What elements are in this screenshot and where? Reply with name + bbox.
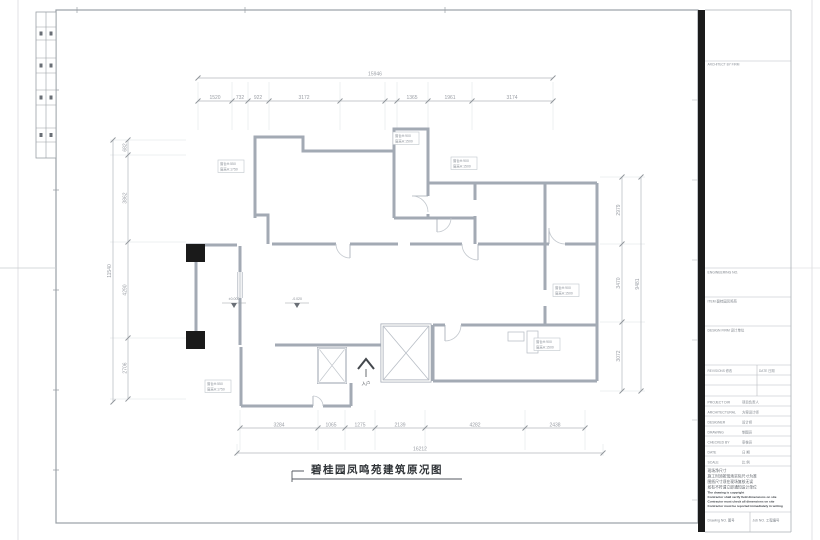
window-tag: 窗台H:550 窗高H:1750 — [205, 380, 231, 393]
shaft-x-mark — [384, 327, 428, 379]
window-tag: 窗台H:900 窗高H:1500 — [451, 157, 477, 170]
tag-line2: 窗高H:1750 — [220, 167, 238, 172]
door-arcs — [313, 196, 565, 406]
column-black-2 — [186, 331, 205, 349]
dim-bottom-seg: 1065 — [325, 422, 336, 428]
floor-plan: 入户 ±0.000 -0.020 窗台H:550 窗高H:1750 窗台H:90… — [110, 82, 645, 456]
dim-bottom-seg: 2438 — [549, 422, 560, 428]
tag-line1: 窗台H:900 — [395, 133, 411, 138]
tb-row-en: CHECKED BY — [708, 440, 731, 444]
tb-design-firm: DESIGN FIRM 设计单位 — [708, 328, 745, 333]
tag-line2: 窗高H:1500 — [555, 291, 573, 296]
drawing-title: 碧桂园凤鸣苑建筑原况图 — [292, 463, 462, 482]
dim-left-seg: 3862 — [123, 192, 129, 203]
bar-tick-marks — [692, 100, 698, 500]
dim-bottom-seg: 4282 — [469, 422, 480, 428]
frame-tick-marks — [53, 7, 445, 470]
dim-right-overall: 9481 — [635, 278, 641, 289]
tb-drawing-no: Drawing NO. 图号 — [708, 518, 736, 523]
dimension-extension-lines — [110, 82, 645, 456]
dim-left-seg: 682 — [123, 143, 129, 152]
tb-row-zh: 方案设计师 — [742, 409, 760, 414]
tb-row-en: ARCHITECTURAL — [708, 410, 737, 414]
stair-shaft — [318, 348, 346, 383]
level-marker-value: -0.020 — [292, 297, 302, 301]
tag-line1: 窗台H:900 — [536, 339, 552, 344]
tb-row-zh: 设计师 — [742, 419, 753, 424]
window-lines — [238, 150, 597, 300]
elevator-shaft — [382, 325, 430, 381]
dim-right-seg: 3470 — [616, 277, 622, 288]
tb-job-no: Job NO. 工程编号 — [753, 518, 781, 523]
title-block-bar — [698, 10, 705, 532]
dimensions: 15946 1520 732 922 3172 1365 1961 3174 1… — [107, 72, 644, 456]
tb-row-zh: 比 例 — [742, 459, 750, 464]
tag-line1: 窗台H:550 — [220, 161, 236, 166]
tb-row-en: PROJECT DIR — [708, 400, 731, 404]
tag-line2: 窗高H:1750 — [207, 387, 225, 392]
dim-top-seg: 3174 — [506, 95, 517, 101]
tb-note: The drawing is copyright — [708, 491, 745, 495]
tag-line1: 窗台H:550 — [207, 381, 223, 386]
tag-line1: 窗台H:900 — [453, 158, 469, 163]
tb-engineering-no: ENGINEERING NO. — [708, 271, 739, 275]
entry-arrow: 入户 — [358, 359, 374, 387]
sheet-frame — [0, 0, 820, 540]
tb-row-zh: 制图员 — [742, 429, 753, 434]
kitchen-fixtures — [508, 331, 538, 353]
drawing-frame — [56, 10, 698, 523]
window-tags: 窗台H:550 窗高H:1750 窗台H:900 窗高H:1500 窗台H:90… — [205, 132, 579, 393]
drawing-sheet: 入户 ±0.000 -0.020 窗台H:550 窗高H:1750 窗台H:90… — [0, 0, 820, 540]
dim-right-seg: 3072 — [616, 350, 622, 361]
column-black-1 — [186, 244, 205, 262]
tb-row-zh: 项目负责人 — [742, 399, 760, 404]
door-swings — [313, 196, 565, 406]
tb-row-zh: 日 期 — [742, 449, 750, 454]
dimension-ticks — [111, 76, 644, 456]
window-tag: 窗台H:900 窗高H:1500 — [393, 132, 419, 145]
dim-bottom-seg: 3284 — [273, 422, 284, 428]
dim-right-seg: 2979 — [616, 204, 622, 215]
tb-note: 施工时须按现场实际尺寸为准 — [708, 474, 758, 479]
walls — [186, 129, 597, 406]
dim-bottom-overall: 16212 — [413, 447, 427, 453]
tb-note: Contractor must be reported immediately … — [708, 504, 783, 508]
dim-left-overall: 11540 — [107, 264, 113, 278]
tb-row-en: DESIGNER — [708, 420, 726, 424]
tag-line2: 窗高H:1500 — [536, 345, 554, 350]
dim-top-seg: 3172 — [298, 95, 309, 101]
wall-outline — [186, 129, 597, 406]
tb-architect-by: ARCHITECT BY FIRM — [708, 63, 740, 67]
dim-top-seg: 922 — [254, 95, 263, 101]
dim-top-seg: 1365 — [406, 95, 417, 101]
entry-label: 入户 — [362, 380, 371, 387]
entry-arrow-icon — [358, 359, 374, 369]
tb-revisions-header: REVISIONS 修改 — [708, 368, 733, 373]
tag-line2: 窗高H:1500 — [395, 139, 413, 144]
level-marker-value: ±0.000 — [229, 297, 240, 301]
dim-left-seg: 4290 — [123, 284, 129, 295]
tb-note: Contractor must check all dimensions on … — [708, 500, 775, 504]
tb-item: ITEM 碧桂园凤鸣苑 — [708, 299, 738, 304]
dim-bottom-seg: 2139 — [394, 422, 405, 428]
tag-line2: 窗高H:1500 — [453, 164, 471, 169]
tb-row-zh: 审核员 — [742, 439, 753, 444]
tag-line1: 窗台H:900 — [555, 285, 571, 290]
tb-row-en: DATE — [708, 450, 718, 454]
tb-note: 现场净尺寸 — [708, 468, 727, 473]
tb-note: Contractor shall verify field dimensions… — [708, 495, 777, 499]
title-block: ARCHITECT BY FIRM ENGINEERING NO. ITEM 碧… — [698, 10, 791, 532]
tb-note: 如有不符请立即通知设计单位 — [708, 485, 758, 490]
dim-top-seg: 1520 — [209, 95, 220, 101]
dim-top-seg: 1961 — [444, 95, 455, 101]
dim-top-overall: 15946 — [368, 72, 382, 78]
dim-bottom-seg: 1275 — [354, 422, 365, 428]
tb-note: 图纸尺寸须在现场复核无误 — [708, 479, 754, 484]
page-title: 碧桂园凤鸣苑建筑原况图 — [310, 463, 443, 476]
level-triangle-icon — [294, 303, 300, 308]
stair-x-mark — [320, 350, 345, 382]
window-tag: 窗台H:900 窗高H:1500 — [534, 338, 560, 351]
dimension-lines — [113, 78, 641, 453]
tb-row-en: DRAWING — [708, 430, 725, 434]
window-tag: 窗台H:900 窗高H:1500 — [553, 284, 579, 297]
dim-top-seg: 732 — [236, 95, 245, 101]
tb-row-en: SCALE — [708, 460, 720, 464]
floorplan-canvas: 入户 ±0.000 -0.020 窗台H:550 窗高H:1750 窗台H:90… — [0, 0, 820, 540]
window-tag: 窗台H:550 窗高H:1750 — [218, 160, 244, 173]
tb-date-header: DATE 日期 — [759, 368, 775, 373]
level-markers: ±0.000 -0.020 — [222, 297, 309, 308]
level-triangle-icon — [231, 303, 237, 308]
dim-left-seg: 2706 — [123, 362, 129, 373]
wall-core — [186, 129, 597, 406]
left-revision-strip — [36, 12, 56, 158]
